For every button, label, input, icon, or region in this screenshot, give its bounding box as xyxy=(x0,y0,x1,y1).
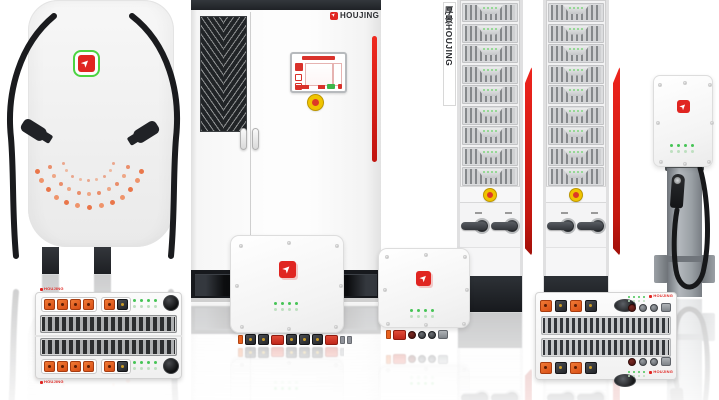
switch-handle xyxy=(461,222,487,230)
module-led xyxy=(577,110,579,112)
black-connector-refl xyxy=(245,347,256,358)
status-led xyxy=(281,308,284,311)
indicator-dot xyxy=(39,178,44,183)
power-rack-tower-2 xyxy=(528,0,620,312)
status-led xyxy=(288,308,291,311)
status-led-refl xyxy=(431,376,434,379)
emergency-stop-button xyxy=(570,189,582,201)
connector-row-refl xyxy=(386,354,448,365)
indicator-dot xyxy=(64,200,69,205)
status-led xyxy=(140,361,143,364)
module-led xyxy=(581,151,583,153)
status-led xyxy=(417,309,420,312)
screw-refl xyxy=(424,367,428,371)
gun-socket-face xyxy=(673,176,682,185)
status-led xyxy=(431,309,434,312)
red-w-connector-refl xyxy=(271,348,284,358)
led-row xyxy=(133,360,161,363)
breaker-switch-panel-refl xyxy=(546,377,606,400)
module-led xyxy=(495,48,497,50)
fan-knob xyxy=(163,358,179,374)
module-led xyxy=(581,171,583,173)
module-led xyxy=(483,28,485,30)
module-led xyxy=(581,7,583,9)
module-led xyxy=(491,171,493,173)
module-led xyxy=(577,89,579,91)
brand-logo-icon: ➤ xyxy=(330,12,338,20)
status-led xyxy=(274,308,277,311)
status-led-refl xyxy=(410,382,413,385)
estop-band xyxy=(546,186,606,203)
module-led xyxy=(581,28,583,30)
status-led-grid-refl xyxy=(274,379,302,391)
brand-logo: ➤ HOUJING xyxy=(330,11,379,20)
connector-row xyxy=(540,298,597,313)
switch-handle-refl xyxy=(547,394,573,400)
pillar-leg xyxy=(42,247,59,274)
screw-refl xyxy=(462,368,466,372)
module-led xyxy=(581,89,583,91)
module-led xyxy=(491,110,493,112)
black-connector-refl xyxy=(258,347,269,358)
module-led xyxy=(577,69,579,71)
module-led xyxy=(569,7,571,9)
status-led-refl xyxy=(431,382,434,385)
status-led-refl xyxy=(274,387,277,390)
black-connector xyxy=(555,362,567,374)
wall-mounted-unit-a: ➤ xyxy=(230,235,344,346)
io-cluster: HOUJING xyxy=(628,294,673,316)
display-bar xyxy=(318,85,325,89)
brand-dot-icon xyxy=(649,371,652,374)
status-led xyxy=(638,300,640,302)
vent-grille xyxy=(40,338,177,356)
indicator-dot xyxy=(95,178,98,181)
module-led xyxy=(487,7,489,9)
rack-power-module xyxy=(548,106,604,125)
indicator-dot xyxy=(112,162,115,165)
rotary-switch-refl xyxy=(493,385,523,400)
screw xyxy=(683,81,687,85)
pillar-leg xyxy=(94,247,111,274)
breaker-switch-panel xyxy=(546,203,606,247)
module-led xyxy=(491,130,493,132)
black-connector xyxy=(117,361,128,372)
screw-refl xyxy=(240,363,244,367)
status-led xyxy=(628,300,630,302)
vertical-brand-label: 厚景HOUJING xyxy=(443,2,456,106)
status-led xyxy=(677,150,680,153)
rack-power-module xyxy=(462,147,518,166)
screw xyxy=(235,284,239,288)
indicator-dot xyxy=(97,191,101,195)
orange-connector xyxy=(83,299,94,310)
rack-power-module xyxy=(462,85,518,104)
indicator-dot xyxy=(75,203,80,208)
screw xyxy=(462,322,466,326)
gray-sq-connector xyxy=(661,357,671,366)
screw xyxy=(707,160,711,164)
black-r-connector-refl xyxy=(428,356,436,364)
red-accent-stripe xyxy=(613,66,620,256)
display-logo-icon xyxy=(295,63,303,71)
module-led xyxy=(487,69,489,71)
module-led xyxy=(581,110,583,112)
gray-sq-connector xyxy=(438,330,448,339)
screw xyxy=(424,253,428,257)
module-led xyxy=(569,130,571,132)
brand-mini-label: HOUJING xyxy=(40,287,64,291)
screw xyxy=(335,244,339,248)
indicator-dot xyxy=(128,187,133,192)
orange-connector xyxy=(44,361,55,372)
status-led-refl xyxy=(417,376,420,379)
rack-module-stack xyxy=(462,3,518,186)
module-led xyxy=(569,151,571,153)
black-connector xyxy=(312,334,323,345)
status-led xyxy=(133,361,136,364)
wall-mounted-unit-b: ➤ xyxy=(378,248,470,347)
red-accent-stripe xyxy=(372,36,377,162)
rotary-switch xyxy=(549,211,579,239)
led-row xyxy=(274,307,302,310)
connector-group xyxy=(101,297,131,312)
status-led xyxy=(133,305,136,308)
module-led xyxy=(573,151,575,153)
rack-lower-panel-refl xyxy=(460,348,520,377)
screw xyxy=(710,121,714,125)
red-w-connector xyxy=(325,335,338,345)
gray-s-connector-refl xyxy=(340,349,345,357)
rack-power-module-panel: HOUJING HOUJING xyxy=(535,292,677,380)
module-led xyxy=(483,171,485,173)
brand-logo-badge: ➤ xyxy=(73,50,100,77)
wall-mounted-unit-a-reflection: ➤ xyxy=(230,346,344,400)
status-led xyxy=(295,302,298,305)
indicator-dot xyxy=(122,174,126,178)
module-led xyxy=(577,171,579,173)
door-handle xyxy=(252,128,259,150)
maroon-r-connector xyxy=(628,304,636,312)
switch-knob-refl xyxy=(590,390,606,400)
brand-mini-label: HOUJING xyxy=(649,370,673,374)
screw xyxy=(334,325,338,329)
module-led xyxy=(573,48,575,50)
module-led xyxy=(495,130,497,132)
connector-row-refl xyxy=(238,347,352,358)
switch-handle-refl xyxy=(491,394,517,400)
orange-s-connector xyxy=(238,335,243,344)
emergency-stop-button xyxy=(308,95,323,110)
module-led xyxy=(487,171,489,173)
gray-s-connector xyxy=(340,336,345,344)
switch-label-mark xyxy=(591,212,598,214)
breaker-switch-panel-refl xyxy=(460,377,520,400)
indicator-dot xyxy=(59,182,63,186)
status-led xyxy=(691,144,694,147)
orange-s-connector-refl xyxy=(238,348,243,357)
rack-frame xyxy=(543,0,609,312)
led-row xyxy=(670,149,698,152)
gray-sq-connector-refl xyxy=(438,355,448,364)
led-row xyxy=(670,143,698,146)
cabinet-display xyxy=(290,52,347,93)
rotary-switch xyxy=(493,211,523,239)
black-connector-refl xyxy=(286,347,297,358)
cabinet-top-band xyxy=(191,0,381,10)
module-led xyxy=(491,7,493,9)
screw-refl xyxy=(287,361,291,365)
led-row-refl xyxy=(410,377,438,380)
black-connector-refl xyxy=(299,347,310,358)
module-led xyxy=(483,151,485,153)
gray-r-connector xyxy=(650,304,658,312)
black-connector-refl xyxy=(312,347,323,358)
module-led xyxy=(483,7,485,9)
orange-connector xyxy=(57,361,68,372)
status-led xyxy=(288,302,291,305)
indicator-dot xyxy=(115,182,119,186)
switch-handle xyxy=(577,222,603,230)
module-led xyxy=(495,171,497,173)
gray-s-connector xyxy=(347,336,352,344)
wall-unit-body-refl xyxy=(230,359,344,400)
connector-row xyxy=(386,329,448,340)
screw xyxy=(708,83,712,87)
black-connector xyxy=(555,300,567,312)
indicator-dot xyxy=(103,175,106,178)
screw xyxy=(656,121,660,125)
indicator-dot xyxy=(65,169,68,172)
module-led xyxy=(573,7,575,9)
module-led xyxy=(581,69,583,71)
display-red-chip xyxy=(338,84,342,89)
switch-knob-refl xyxy=(504,390,520,400)
status-led xyxy=(410,315,413,318)
orange-connector xyxy=(57,299,68,310)
indicator-dot xyxy=(126,165,130,169)
led-row xyxy=(628,369,648,371)
led-row xyxy=(628,298,648,300)
module-led xyxy=(487,130,489,132)
rotary-switch-refl xyxy=(463,385,493,400)
switch-knob-refl xyxy=(560,390,576,400)
led-row xyxy=(133,298,161,301)
rack-power-module xyxy=(548,167,604,186)
module-led xyxy=(573,130,575,132)
status-led xyxy=(424,309,427,312)
rotary-switch-refl xyxy=(549,385,579,400)
switch-label-mark xyxy=(561,212,568,214)
status-led xyxy=(147,367,150,370)
round-connector-group xyxy=(628,303,671,312)
status-led-grid xyxy=(670,143,698,155)
orange-connector xyxy=(104,361,115,372)
rack-power-module xyxy=(548,44,604,63)
vent-grille xyxy=(541,316,671,335)
module-led xyxy=(573,89,575,91)
rack-lower-panel xyxy=(546,247,606,276)
module-led xyxy=(487,110,489,112)
black-connector xyxy=(585,362,597,374)
indicator-dot xyxy=(35,169,40,174)
status-led xyxy=(643,300,645,302)
module-led xyxy=(577,151,579,153)
display-tile xyxy=(295,74,302,81)
indicator-dot xyxy=(48,165,52,169)
rack-power-module xyxy=(462,167,518,186)
rack-power-module xyxy=(462,24,518,43)
led-row xyxy=(628,373,648,375)
switch-handle-refl xyxy=(577,394,603,400)
rack-power-module xyxy=(462,3,518,22)
screw xyxy=(463,255,467,259)
orange-connector xyxy=(44,299,55,310)
orange-connector xyxy=(570,300,582,312)
status-led xyxy=(147,299,150,302)
status-led-grid xyxy=(628,294,648,302)
dc-charging-pillar: ➤ xyxy=(0,0,186,274)
status-led xyxy=(691,150,694,153)
switch-knob-refl xyxy=(474,390,490,400)
cabinet-vent-grille xyxy=(200,16,247,132)
module-led xyxy=(495,28,497,30)
module-led xyxy=(483,48,485,50)
module-led xyxy=(491,151,493,153)
vent-pattern xyxy=(224,17,247,131)
module-led xyxy=(577,130,579,132)
indicator-dot xyxy=(99,203,104,208)
module-led xyxy=(495,151,497,153)
brand-logo-icon: ➤ xyxy=(78,55,95,72)
indicator-dot xyxy=(46,187,51,192)
connector-group xyxy=(101,359,131,374)
module-led xyxy=(491,28,493,30)
module-led xyxy=(483,89,485,91)
indicator-dot xyxy=(79,178,82,181)
black-connector xyxy=(117,299,128,310)
brand-logo-icon: ➤ xyxy=(677,100,690,113)
red-w-connector xyxy=(393,330,406,340)
gray-r-connector xyxy=(650,358,658,366)
status-led xyxy=(424,315,427,318)
screw xyxy=(240,325,244,329)
status-led-grid xyxy=(133,360,161,372)
status-led xyxy=(633,300,635,302)
indicator-dot xyxy=(77,191,81,195)
black-r-connector-refl xyxy=(418,356,426,364)
screw xyxy=(386,322,390,326)
fan-knob xyxy=(163,295,179,311)
switch-label-mark xyxy=(505,212,512,214)
status-led xyxy=(274,302,277,305)
status-led-refl xyxy=(288,387,291,390)
status-led-grid xyxy=(410,308,438,320)
status-led xyxy=(140,305,143,308)
indicator-dot xyxy=(71,175,74,178)
indicator-dot xyxy=(107,187,111,191)
wall-unit-body-refl xyxy=(378,366,470,400)
black-r-connector xyxy=(428,331,436,339)
screw xyxy=(683,162,687,166)
module-led xyxy=(487,89,489,91)
module-led xyxy=(487,28,489,30)
module-led xyxy=(573,28,575,30)
connector-row xyxy=(540,360,597,375)
module-led xyxy=(569,110,571,112)
module-led xyxy=(573,171,575,173)
io-cluster: HOUJING xyxy=(628,356,673,378)
rack-power-module xyxy=(462,44,518,63)
status-led-refl xyxy=(410,376,413,379)
status-led-refl xyxy=(424,376,427,379)
status-led xyxy=(147,361,150,364)
emergency-stop-button xyxy=(484,189,496,201)
led-row xyxy=(133,366,161,369)
led-row-refl xyxy=(274,382,302,385)
indicator-dot xyxy=(120,195,125,200)
indicator-dot xyxy=(87,179,90,182)
led-row xyxy=(133,304,161,307)
brand-dot-icon xyxy=(649,295,652,298)
orange-s-connector xyxy=(386,330,391,339)
gray-s-connector-refl xyxy=(347,349,352,357)
status-led-refl xyxy=(295,387,298,390)
gray-sq-connector xyxy=(661,303,671,312)
module-led xyxy=(569,171,571,173)
vent-pattern xyxy=(201,17,224,131)
indicator-dot-arcs xyxy=(20,132,160,240)
indicator-dot xyxy=(67,187,71,191)
display-header-bar xyxy=(302,56,335,60)
cable-path-refl xyxy=(674,309,707,400)
connector-row xyxy=(238,334,352,345)
screw xyxy=(383,288,387,292)
status-led xyxy=(633,375,635,377)
status-led-grid xyxy=(628,369,648,377)
module-led xyxy=(577,48,579,50)
display-bar xyxy=(295,85,309,89)
screw-refl xyxy=(386,368,390,372)
brand-dot-icon xyxy=(40,381,43,384)
module-led xyxy=(573,110,575,112)
display-chart-area xyxy=(305,63,333,86)
black-connector xyxy=(585,300,597,312)
status-led-refl xyxy=(281,387,284,390)
rack-power-module xyxy=(462,106,518,125)
wallbox-charger-on-pedestal: ➤ xyxy=(640,60,719,298)
screw xyxy=(658,83,662,87)
led-row xyxy=(410,314,438,317)
screw xyxy=(659,160,663,164)
screw xyxy=(424,323,428,327)
module-led xyxy=(573,69,575,71)
module-led xyxy=(491,69,493,71)
module-led xyxy=(569,48,571,50)
module-led xyxy=(495,110,497,112)
led-row xyxy=(410,308,438,311)
brand-logo-icon: ➤ xyxy=(416,271,431,286)
indicator-dot xyxy=(109,169,112,172)
switch-handle-refl xyxy=(461,394,487,400)
module-led xyxy=(577,28,579,30)
breaker-switch-panel xyxy=(460,203,520,247)
module-divider xyxy=(35,335,182,337)
module-led xyxy=(569,28,571,30)
red-w-connector-refl xyxy=(325,348,338,358)
status-led xyxy=(147,305,150,308)
module-led xyxy=(483,110,485,112)
